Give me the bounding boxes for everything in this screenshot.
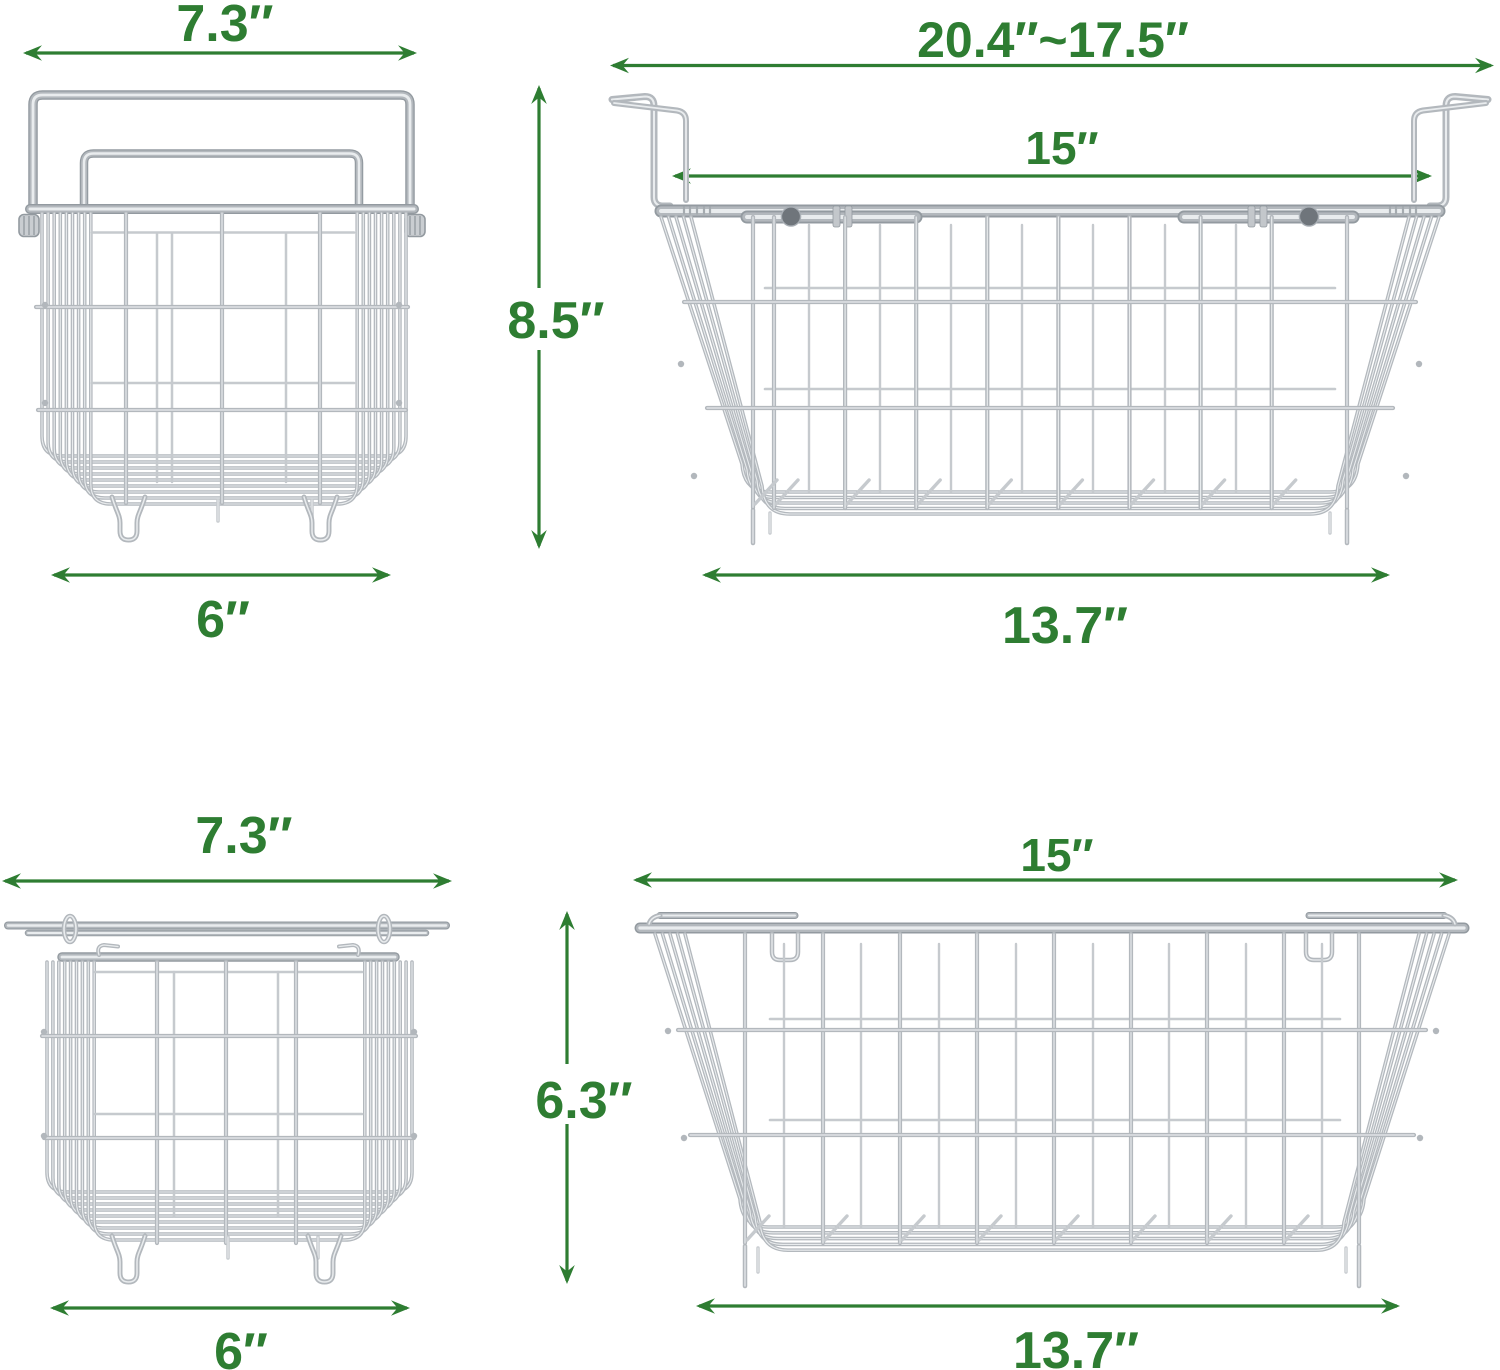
svg-text:6″: 6″ (214, 1323, 268, 1370)
svg-text:6″: 6″ (196, 591, 250, 649)
svg-text:7.3″: 7.3″ (176, 0, 273, 53)
svg-text:8.5″: 8.5″ (507, 292, 604, 350)
svg-text:13.7″: 13.7″ (1002, 597, 1128, 655)
svg-text:15″: 15″ (1025, 122, 1098, 174)
svg-text:7.3″: 7.3″ (195, 807, 292, 865)
svg-text:6.3″: 6.3″ (535, 1072, 632, 1130)
svg-text:13.7″: 13.7″ (1013, 1322, 1139, 1370)
svg-text:20.4″~17.5″: 20.4″~17.5″ (917, 12, 1189, 68)
svg-text:15″: 15″ (1020, 829, 1093, 881)
